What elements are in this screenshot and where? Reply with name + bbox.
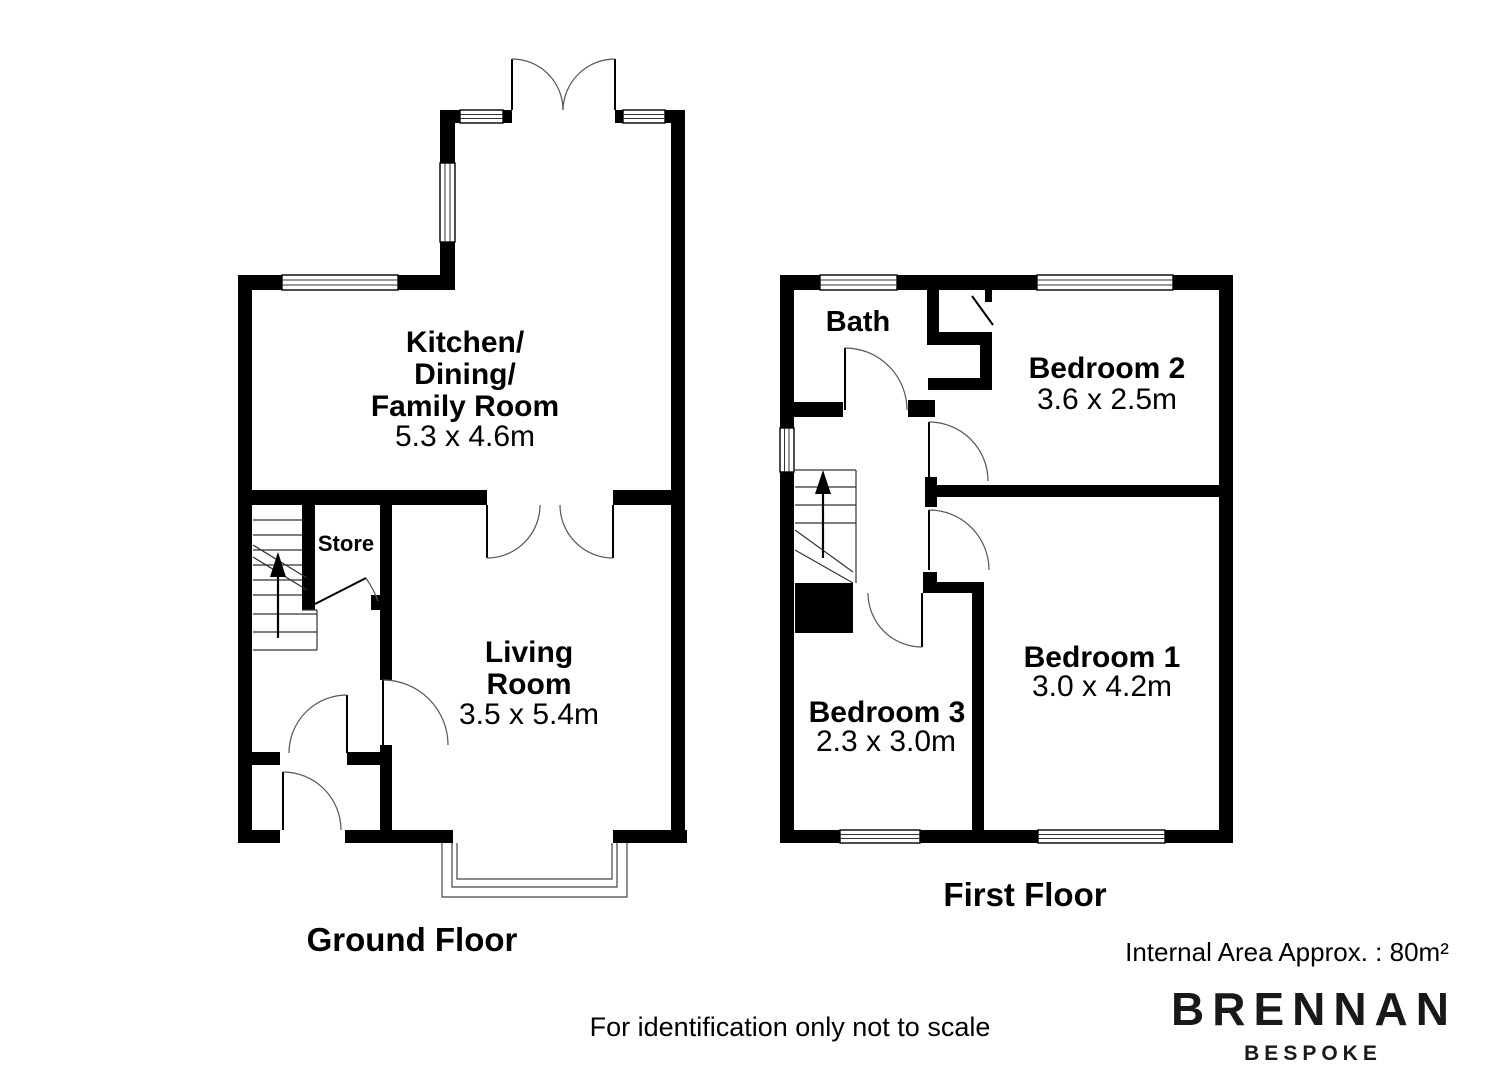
- floorplan-canvas: Kitchen/ Dining/ Family Room 5.3 x 4.6m …: [0, 0, 1494, 1080]
- ground-floor-title: Ground Floor: [307, 921, 518, 958]
- window: [1037, 275, 1173, 290]
- bedroom1-dims: 3.0 x 4.2m: [1032, 670, 1172, 703]
- staircase: [795, 470, 856, 583]
- floorplan-page: Kitchen/ Dining/ Family Room 5.3 x 4.6m …: [0, 0, 1494, 1080]
- bedroom3-dims: 2.3 x 3.0m: [816, 725, 956, 758]
- disclaimer-text: For identification only not to scale: [590, 1012, 991, 1042]
- store-label: Store: [318, 531, 374, 556]
- brand-logo: BRENNAN BESPOKE: [1171, 983, 1457, 1065]
- window: [623, 110, 665, 123]
- internal-area-text: Internal Area Approx. : 80m²: [1125, 937, 1449, 967]
- kitchen-label-line2: Dining/: [414, 358, 516, 391]
- living-dims: 3.5 x 5.4m: [459, 698, 599, 731]
- stairs-up-arrowhead: [815, 470, 831, 494]
- kitchen-label-line1: Kitchen/: [406, 326, 525, 359]
- window: [460, 110, 503, 123]
- first-floor-title: First Floor: [943, 876, 1106, 913]
- first-floor-plan: Bath Bedroom 2 3.6 x 2.5m Bedroom 1 3.0 …: [780, 275, 1233, 913]
- ground-floor-walls: [238, 110, 687, 843]
- living-label-line1: Living: [485, 636, 573, 669]
- hall-door: [289, 695, 347, 753]
- ground-floor-plan: Kitchen/ Dining/ Family Room 5.3 x 4.6m …: [238, 59, 687, 958]
- bath-door: [845, 348, 907, 410]
- window: [780, 428, 794, 472]
- bath-label: Bath: [826, 306, 890, 338]
- bedroom2-door: [929, 422, 988, 481]
- bedroom2-dims: 3.6 x 2.5m: [1037, 383, 1177, 416]
- french-doors-top: [512, 59, 615, 110]
- living-label-line2: Room: [487, 668, 572, 701]
- brand-name: BRENNAN: [1171, 983, 1457, 1035]
- store-door: [315, 578, 378, 604]
- french-doors-kitchen-living: [487, 505, 613, 558]
- window: [282, 275, 398, 290]
- kitchen-dims: 5.3 x 4.6m: [395, 420, 535, 453]
- bay-window: [442, 843, 627, 897]
- living-room-door: [383, 680, 448, 745]
- brand-tagline: BESPOKE: [1244, 1042, 1382, 1065]
- bedroom1-door: [929, 510, 989, 570]
- window: [1038, 830, 1165, 843]
- bedroom2-label: Bedroom 2: [1029, 352, 1186, 385]
- window: [440, 163, 455, 242]
- window: [820, 275, 897, 290]
- bedroom3-door: [868, 593, 922, 647]
- kitchen-label-line3: Family Room: [371, 390, 559, 423]
- front-door: [283, 772, 341, 830]
- window: [840, 830, 920, 843]
